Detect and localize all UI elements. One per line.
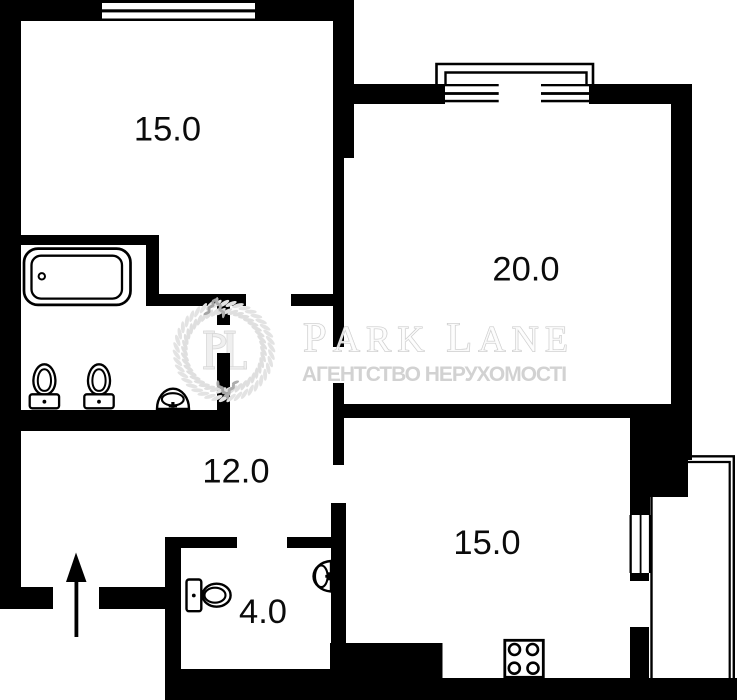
- svg-text:PARK LANE: PARK LANE: [303, 315, 574, 362]
- svg-text:15.0: 15.0: [134, 111, 201, 149]
- svg-text:12.0: 12.0: [202, 453, 269, 491]
- svg-text:4.0: 4.0: [239, 593, 287, 631]
- svg-text:20.0: 20.0: [492, 251, 559, 289]
- svg-text:15.0: 15.0: [453, 524, 520, 562]
- svg-text:АГЕНТСТВО НЕРУХОМОСТІ: АГЕНТСТВО НЕРУХОМОСТІ: [302, 363, 566, 386]
